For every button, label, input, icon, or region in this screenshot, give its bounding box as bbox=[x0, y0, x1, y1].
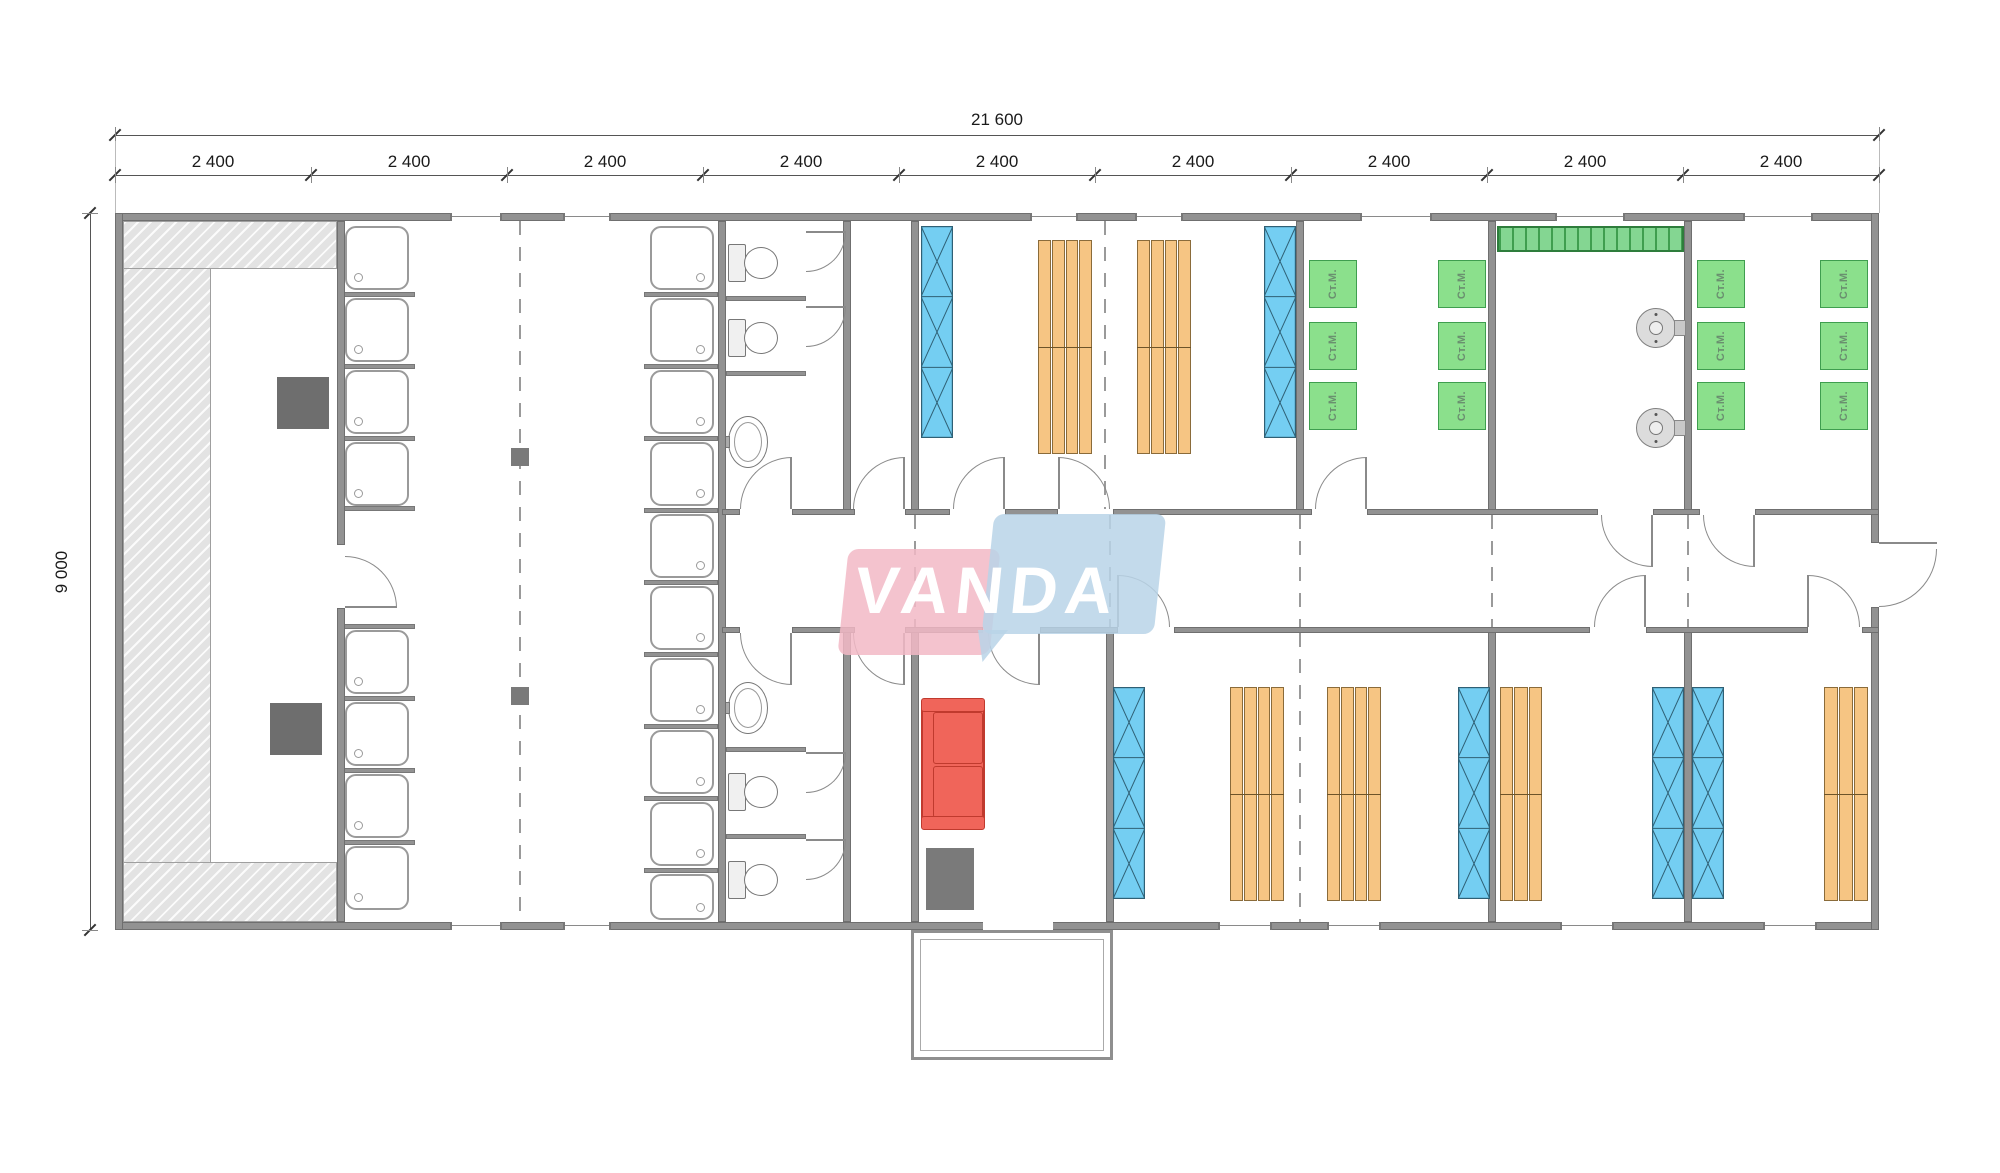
door-leaf bbox=[903, 457, 905, 509]
washing-machine: Ст.М. bbox=[1309, 382, 1357, 430]
height-dimension-line bbox=[90, 213, 91, 931]
door-leaf bbox=[1058, 457, 1060, 509]
locker-wardrobe bbox=[1264, 226, 1296, 438]
shower-partition bbox=[644, 868, 718, 873]
window bbox=[563, 213, 611, 221]
drain-icon bbox=[354, 345, 363, 354]
fountain-dot bbox=[1655, 440, 1658, 443]
shower-tray bbox=[650, 370, 714, 434]
window-glazing bbox=[565, 925, 609, 926]
column-marker bbox=[511, 448, 529, 466]
sauna-stove bbox=[277, 377, 329, 429]
door-leaf bbox=[1365, 457, 1367, 509]
corridor-wall bbox=[792, 509, 855, 515]
dimension-stub bbox=[703, 167, 704, 183]
corridor-wall bbox=[1367, 509, 1598, 515]
door-leaf bbox=[1879, 542, 1937, 544]
bunk-bed bbox=[1038, 240, 1092, 454]
segment-dimension-label: 2 400 bbox=[1564, 152, 1607, 172]
logo-text: VANDA bbox=[851, 552, 1124, 628]
window-glazing bbox=[1562, 925, 1612, 926]
door-leaf bbox=[790, 457, 792, 509]
sauna-bench bbox=[123, 862, 337, 922]
dimension-stub bbox=[311, 167, 312, 183]
washing-machine: Ст.М. bbox=[1438, 260, 1486, 308]
drain-icon bbox=[696, 345, 705, 354]
door-leaf bbox=[1807, 575, 1809, 627]
wall bbox=[1684, 221, 1692, 515]
washing-machine-label: Ст.М. bbox=[1456, 391, 1468, 421]
washing-machine: Ст.М. bbox=[1820, 260, 1868, 308]
shower-partition bbox=[644, 292, 718, 297]
wall bbox=[1296, 221, 1304, 515]
window-glazing bbox=[452, 216, 500, 217]
floor-plan-page: 21 600 2 4002 4002 4002 4002 4002 4002 4… bbox=[0, 0, 2000, 1173]
wash-fountain bbox=[1636, 408, 1676, 448]
washing-machine-label: Ст.М. bbox=[1715, 269, 1727, 299]
washing-machine: Ст.М. bbox=[1697, 382, 1745, 430]
door-swing-arc bbox=[1058, 457, 1110, 509]
bunk-bed bbox=[1824, 687, 1868, 901]
drain-icon bbox=[354, 677, 363, 686]
door-swing-arc bbox=[1703, 515, 1755, 567]
shower-tray bbox=[345, 630, 409, 694]
fountain-wall-mount bbox=[1674, 320, 1686, 336]
basin-inner bbox=[734, 422, 762, 462]
window-glazing bbox=[1137, 216, 1181, 217]
window-glazing bbox=[1362, 216, 1430, 217]
shower-partition bbox=[341, 840, 415, 845]
door-leaf bbox=[1644, 575, 1646, 627]
door-leaf bbox=[1003, 457, 1005, 509]
corridor-wall bbox=[905, 509, 950, 515]
dimension-stub bbox=[82, 930, 98, 931]
shower-partition bbox=[644, 724, 718, 729]
window-glazing bbox=[452, 925, 500, 926]
window bbox=[1030, 213, 1078, 221]
door-leaf bbox=[806, 231, 846, 233]
wash-fountain bbox=[1636, 308, 1676, 348]
bed-divider bbox=[1230, 794, 1284, 795]
washing-machine-label: Ст.М. bbox=[1327, 269, 1339, 299]
washing-machine-label: Ст.М. bbox=[1838, 269, 1850, 299]
shower-tray bbox=[345, 702, 409, 766]
wall bbox=[337, 221, 345, 545]
window bbox=[1218, 922, 1272, 930]
wall bbox=[337, 608, 345, 922]
locker-wardrobe bbox=[1113, 687, 1145, 899]
door-swing-arc bbox=[806, 232, 846, 272]
bunk-bed bbox=[1500, 687, 1542, 901]
corridor-wall bbox=[722, 627, 740, 633]
shower-partition bbox=[341, 436, 415, 441]
shower-tray bbox=[650, 802, 714, 866]
door-swing-arc bbox=[345, 556, 397, 608]
sofa-cushion bbox=[933, 766, 983, 818]
shower-tray bbox=[345, 846, 409, 910]
door-swing-arc bbox=[1315, 457, 1367, 509]
toilet bbox=[744, 776, 778, 808]
door-leaf bbox=[1038, 633, 1040, 685]
wc-stall-partition bbox=[726, 747, 806, 752]
drying-rack bbox=[1497, 226, 1684, 252]
window bbox=[1743, 213, 1813, 221]
washing-machine-label: Ст.М. bbox=[1715, 331, 1727, 361]
shower-tray bbox=[345, 226, 409, 290]
segment-dimension-label: 2 400 bbox=[388, 152, 431, 172]
door-leaf bbox=[806, 839, 846, 841]
door-swing-arc bbox=[806, 307, 846, 347]
total-dimension-line bbox=[115, 135, 1880, 136]
shower-tray bbox=[650, 586, 714, 650]
washing-machine-label: Ст.М. bbox=[1327, 391, 1339, 421]
fountain-wall-mount bbox=[1674, 420, 1686, 436]
washing-machine: Ст.М. bbox=[1438, 382, 1486, 430]
dimension-stub bbox=[899, 167, 900, 183]
tv-stand bbox=[926, 848, 974, 910]
window bbox=[1327, 922, 1381, 930]
drain-icon bbox=[696, 903, 705, 912]
segment-dimension-label: 2 400 bbox=[584, 152, 627, 172]
sofa-cushion bbox=[921, 698, 985, 712]
bed-divider bbox=[1327, 794, 1381, 795]
door-swing-arc bbox=[740, 633, 792, 685]
washing-machine: Ст.М. bbox=[1697, 260, 1745, 308]
toilet bbox=[744, 322, 778, 354]
segment-dimension-label: 2 400 bbox=[1760, 152, 1803, 172]
washbasin bbox=[728, 416, 768, 468]
shower-tray bbox=[650, 514, 714, 578]
segment-dimension-label: 2 400 bbox=[1368, 152, 1411, 172]
corridor-wall bbox=[1646, 627, 1808, 633]
door-leaf bbox=[345, 606, 397, 608]
bed-divider bbox=[1137, 347, 1191, 348]
shower-partition bbox=[644, 364, 718, 369]
dimension-stub bbox=[82, 213, 98, 214]
toilet bbox=[744, 864, 778, 896]
corridor-wall bbox=[722, 509, 740, 515]
washing-machine-label: Ст.М. bbox=[1327, 331, 1339, 361]
shower-partition bbox=[644, 796, 718, 801]
sofa-cushion bbox=[921, 816, 985, 830]
shower-tray bbox=[345, 298, 409, 362]
corridor-wall bbox=[1174, 627, 1590, 633]
segment-dimension-line bbox=[115, 175, 1880, 176]
bed-divider bbox=[1824, 794, 1868, 795]
wall bbox=[843, 627, 851, 922]
entrance-porch bbox=[911, 930, 1113, 1060]
segment-dimension-label: 2 400 bbox=[976, 152, 1019, 172]
washing-machine-label: Ст.М. bbox=[1715, 391, 1727, 421]
window bbox=[563, 922, 611, 930]
wall bbox=[1871, 607, 1879, 930]
wall bbox=[911, 221, 919, 515]
window-glazing bbox=[565, 216, 609, 217]
drain-icon bbox=[354, 821, 363, 830]
drain-icon bbox=[354, 749, 363, 758]
wc-stall-partition bbox=[726, 834, 806, 839]
corridor-wall bbox=[1653, 509, 1700, 515]
dimension-stub bbox=[1487, 167, 1488, 183]
window bbox=[1763, 922, 1817, 930]
wall bbox=[115, 213, 123, 930]
drain-icon bbox=[696, 489, 705, 498]
bed-divider bbox=[1500, 794, 1542, 795]
sauna-stove bbox=[270, 703, 322, 755]
window-glazing bbox=[1329, 925, 1379, 926]
washing-machine: Ст.М. bbox=[1697, 322, 1745, 370]
washing-machine: Ст.М. bbox=[1820, 382, 1868, 430]
door-swing-arc bbox=[1808, 575, 1860, 627]
toilet bbox=[744, 247, 778, 279]
washing-machine: Ст.М. bbox=[1438, 322, 1486, 370]
bed-divider bbox=[1038, 347, 1092, 348]
door-swing-arc bbox=[1601, 515, 1653, 567]
door-leaf bbox=[1651, 515, 1653, 567]
module-axis-dashed-line bbox=[1104, 221, 1106, 509]
module-axis-dashed-line bbox=[1299, 633, 1301, 922]
shower-tray bbox=[345, 442, 409, 506]
drain-icon bbox=[354, 273, 363, 282]
shower-partition bbox=[644, 436, 718, 441]
module-axis-dashed-line bbox=[1491, 515, 1493, 627]
fountain-dot bbox=[1655, 413, 1658, 416]
bunk-bed bbox=[1327, 687, 1381, 901]
drain-icon bbox=[696, 561, 705, 570]
sauna-bench bbox=[123, 221, 337, 269]
window bbox=[1135, 213, 1183, 221]
sauna-bench bbox=[123, 221, 211, 922]
drain-icon bbox=[354, 489, 363, 498]
washing-machine-label: Ст.М. bbox=[1456, 269, 1468, 299]
height-label: 9 000 bbox=[52, 532, 72, 612]
fountain-dot bbox=[1655, 313, 1658, 316]
exit-door-gap bbox=[1871, 543, 1879, 607]
shower-partition bbox=[644, 652, 718, 657]
wall bbox=[911, 627, 919, 922]
drain-icon bbox=[696, 417, 705, 426]
window-glazing bbox=[1745, 216, 1811, 217]
door-swing-arc bbox=[806, 753, 846, 793]
shower-partition bbox=[341, 624, 415, 629]
shower-tray bbox=[650, 442, 714, 506]
shower-tray bbox=[650, 730, 714, 794]
shower-tray bbox=[650, 298, 714, 362]
washing-machine: Ст.М. bbox=[1820, 322, 1868, 370]
shower-tray bbox=[650, 226, 714, 290]
shower-tray bbox=[650, 658, 714, 722]
bunk-bed bbox=[1230, 687, 1284, 901]
window bbox=[450, 922, 502, 930]
wc-stall-partition bbox=[726, 371, 806, 376]
shower-partition bbox=[341, 364, 415, 369]
segment-dimension-label: 2 400 bbox=[780, 152, 823, 172]
drain-icon bbox=[354, 893, 363, 902]
shower-tray bbox=[345, 774, 409, 838]
shower-tray bbox=[345, 370, 409, 434]
module-axis-dashed-line bbox=[1299, 515, 1301, 627]
door-leaf bbox=[806, 306, 846, 308]
window-glazing bbox=[1557, 216, 1623, 217]
sofa-cushion bbox=[933, 712, 983, 764]
shower-partition bbox=[644, 580, 718, 585]
door-leaf bbox=[790, 633, 792, 685]
wall bbox=[1871, 213, 1879, 543]
window bbox=[1360, 213, 1432, 221]
washing-machine-label: Ст.М. bbox=[1838, 391, 1850, 421]
locker-wardrobe bbox=[1692, 687, 1724, 899]
shower-tray bbox=[650, 874, 714, 920]
wc-stall-partition bbox=[726, 296, 806, 301]
door-swing-arc bbox=[806, 840, 846, 880]
door-swing-arc bbox=[1879, 549, 1937, 607]
door-swing-arc bbox=[1594, 575, 1646, 627]
fountain-center bbox=[1649, 421, 1663, 435]
dimension-stub bbox=[1291, 167, 1292, 183]
module-axis-dashed-line bbox=[1687, 515, 1689, 627]
porch-step-line bbox=[920, 939, 1104, 1051]
shower-partition bbox=[341, 768, 415, 773]
dimension-stub bbox=[115, 167, 116, 183]
window-glazing bbox=[1032, 216, 1076, 217]
bunk-bed bbox=[1137, 240, 1191, 454]
door-swing-arc bbox=[853, 457, 905, 509]
segment-dimension-label: 2 400 bbox=[192, 152, 235, 172]
corridor-wall bbox=[1862, 627, 1879, 633]
dimension-stub bbox=[1095, 167, 1096, 183]
locker-wardrobe bbox=[1652, 687, 1684, 899]
locker-wardrobe bbox=[1458, 687, 1490, 899]
drain-icon bbox=[696, 777, 705, 786]
window-glazing bbox=[1220, 925, 1270, 926]
wall bbox=[843, 221, 851, 515]
total-width-label: 21 600 bbox=[971, 110, 1023, 130]
drain-icon bbox=[696, 633, 705, 642]
shower-partition bbox=[644, 508, 718, 513]
column-marker bbox=[511, 687, 529, 705]
shower-partition bbox=[341, 292, 415, 297]
shower-partition bbox=[341, 696, 415, 701]
fountain-center bbox=[1649, 321, 1663, 335]
washing-machine: Ст.М. bbox=[1309, 322, 1357, 370]
drain-icon bbox=[696, 849, 705, 858]
door-leaf bbox=[806, 752, 846, 754]
washbasin bbox=[728, 682, 768, 734]
entry-door-gap bbox=[983, 922, 1053, 930]
window-glazing bbox=[1765, 925, 1815, 926]
wall bbox=[1488, 221, 1496, 515]
corridor-wall bbox=[1755, 509, 1879, 515]
wall bbox=[1684, 627, 1692, 922]
window bbox=[450, 213, 502, 221]
locker-wardrobe bbox=[921, 226, 953, 438]
washing-machine-label: Ст.М. bbox=[1456, 331, 1468, 361]
wall bbox=[718, 221, 726, 922]
drain-icon bbox=[696, 705, 705, 714]
drain-icon bbox=[696, 273, 705, 282]
window bbox=[1560, 922, 1614, 930]
fountain-dot bbox=[1655, 340, 1658, 343]
dimension-stub bbox=[1683, 167, 1684, 183]
module-axis-dashed-line bbox=[519, 221, 521, 922]
window bbox=[1555, 213, 1625, 221]
door-swing-arc bbox=[953, 457, 1005, 509]
dimension-stub bbox=[507, 167, 508, 183]
basin-inner bbox=[734, 688, 762, 728]
drain-icon bbox=[354, 417, 363, 426]
dimension-stub bbox=[1879, 167, 1880, 183]
segment-dimension-label: 2 400 bbox=[1172, 152, 1215, 172]
shower-partition bbox=[341, 506, 415, 511]
washing-machine: Ст.М. bbox=[1309, 260, 1357, 308]
washing-machine-label: Ст.М. bbox=[1838, 331, 1850, 361]
door-leaf bbox=[1753, 515, 1755, 567]
